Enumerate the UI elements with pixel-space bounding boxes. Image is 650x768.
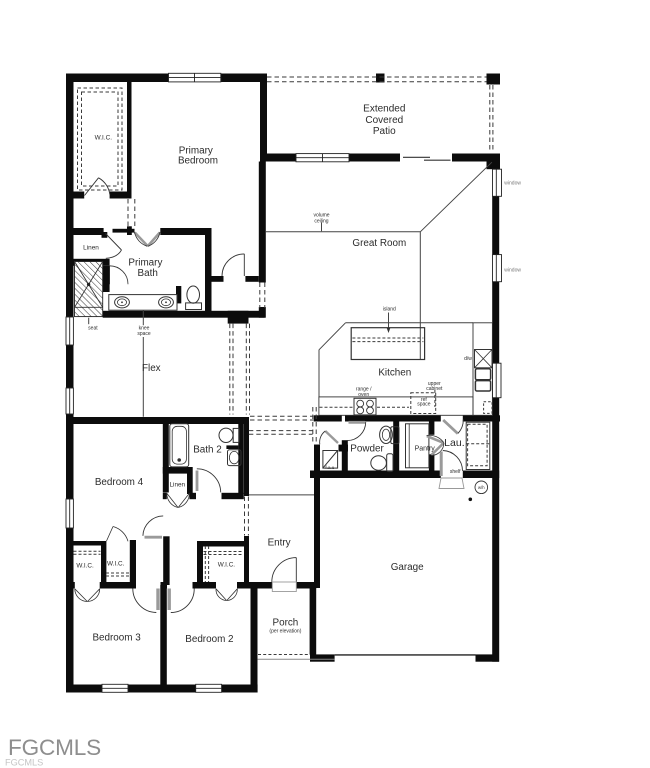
svg-text:Extended: Extended — [363, 104, 405, 115]
svg-text:shelf: shelf — [450, 469, 461, 475]
svg-text:Bath 2: Bath 2 — [193, 444, 222, 455]
svg-text:island: island — [383, 307, 396, 313]
svg-text:Great Room: Great Room — [352, 238, 406, 249]
svg-text:Bedroom 2: Bedroom 2 — [185, 634, 233, 645]
svg-text:window: window — [504, 181, 521, 187]
svg-text:Pantry: Pantry — [415, 445, 436, 452]
svg-text:Bedroom 3: Bedroom 3 — [92, 633, 141, 644]
svg-text:Linen: Linen — [169, 481, 185, 488]
svg-text:Bedroom 4: Bedroom 4 — [95, 477, 144, 488]
svg-text:Entry: Entry — [268, 537, 291, 548]
svg-text:W.I.C.: W.I.C. — [76, 563, 94, 570]
svg-text:space: space — [417, 401, 431, 407]
svg-text:W.I.C.: W.I.C. — [95, 135, 113, 142]
svg-text:Porch: Porch — [273, 618, 299, 629]
svg-text:oven: oven — [358, 392, 369, 398]
svg-text:Lau.: Lau. — [444, 437, 464, 449]
svg-text:W.I.C.: W.I.C. — [107, 560, 125, 567]
svg-text:Garage: Garage — [391, 562, 424, 573]
svg-text:window: window — [504, 268, 521, 274]
svg-text:space: space — [137, 331, 151, 337]
svg-text:Patio: Patio — [373, 126, 396, 137]
svg-text:Covered: Covered — [365, 115, 403, 126]
svg-text:Powder: Powder — [350, 443, 384, 454]
svg-text:f.a.u: f.a.u — [325, 465, 334, 470]
svg-text:Linen: Linen — [83, 245, 99, 252]
svg-text:w/h: w/h — [478, 485, 485, 490]
svg-text:ceiling: ceiling — [314, 218, 328, 224]
svg-text:FGCMLS: FGCMLS — [5, 758, 43, 768]
svg-text:FGCMLS: FGCMLS — [8, 735, 101, 760]
svg-text:d/w: d/w — [464, 356, 472, 362]
svg-text:Kitchen: Kitchen — [378, 367, 411, 378]
svg-text:(per elevation): (per elevation) — [269, 629, 301, 635]
svg-text:Flex: Flex — [142, 363, 161, 374]
svg-text:Bedroom: Bedroom — [178, 156, 218, 167]
svg-text:W.I.C.: W.I.C. — [218, 562, 236, 569]
svg-text:Bath: Bath — [138, 268, 158, 279]
svg-text:seat: seat — [88, 325, 98, 331]
svg-text:cabinet: cabinet — [426, 386, 443, 392]
svg-text:Primary: Primary — [128, 258, 162, 269]
